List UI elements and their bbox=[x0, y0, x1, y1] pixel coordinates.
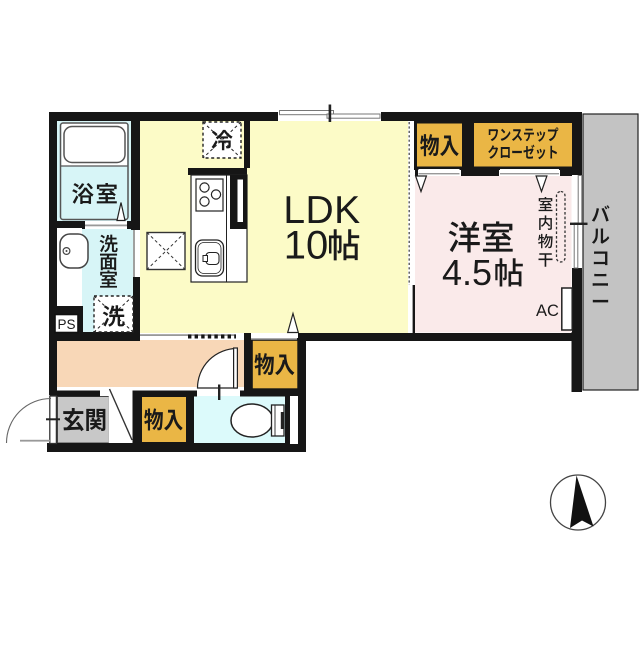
svg-text:4.5: 4.5 bbox=[442, 252, 492, 293]
svg-text:10: 10 bbox=[284, 224, 329, 268]
svg-text:PS: PS bbox=[57, 317, 75, 332]
svg-text:AC: AC bbox=[536, 302, 559, 320]
